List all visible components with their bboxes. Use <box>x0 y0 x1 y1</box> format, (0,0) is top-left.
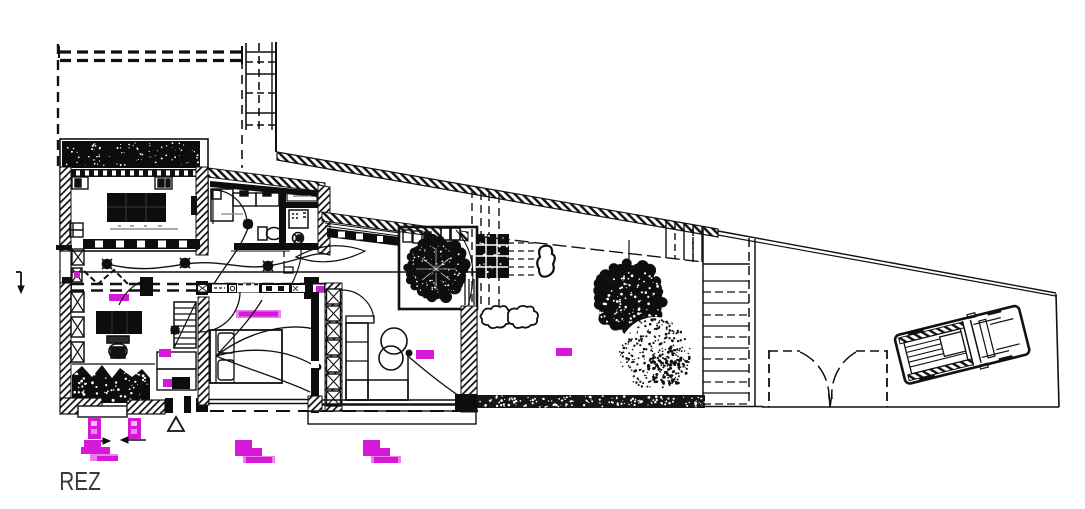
svg-text:REZ: REZ <box>59 467 101 496</box>
